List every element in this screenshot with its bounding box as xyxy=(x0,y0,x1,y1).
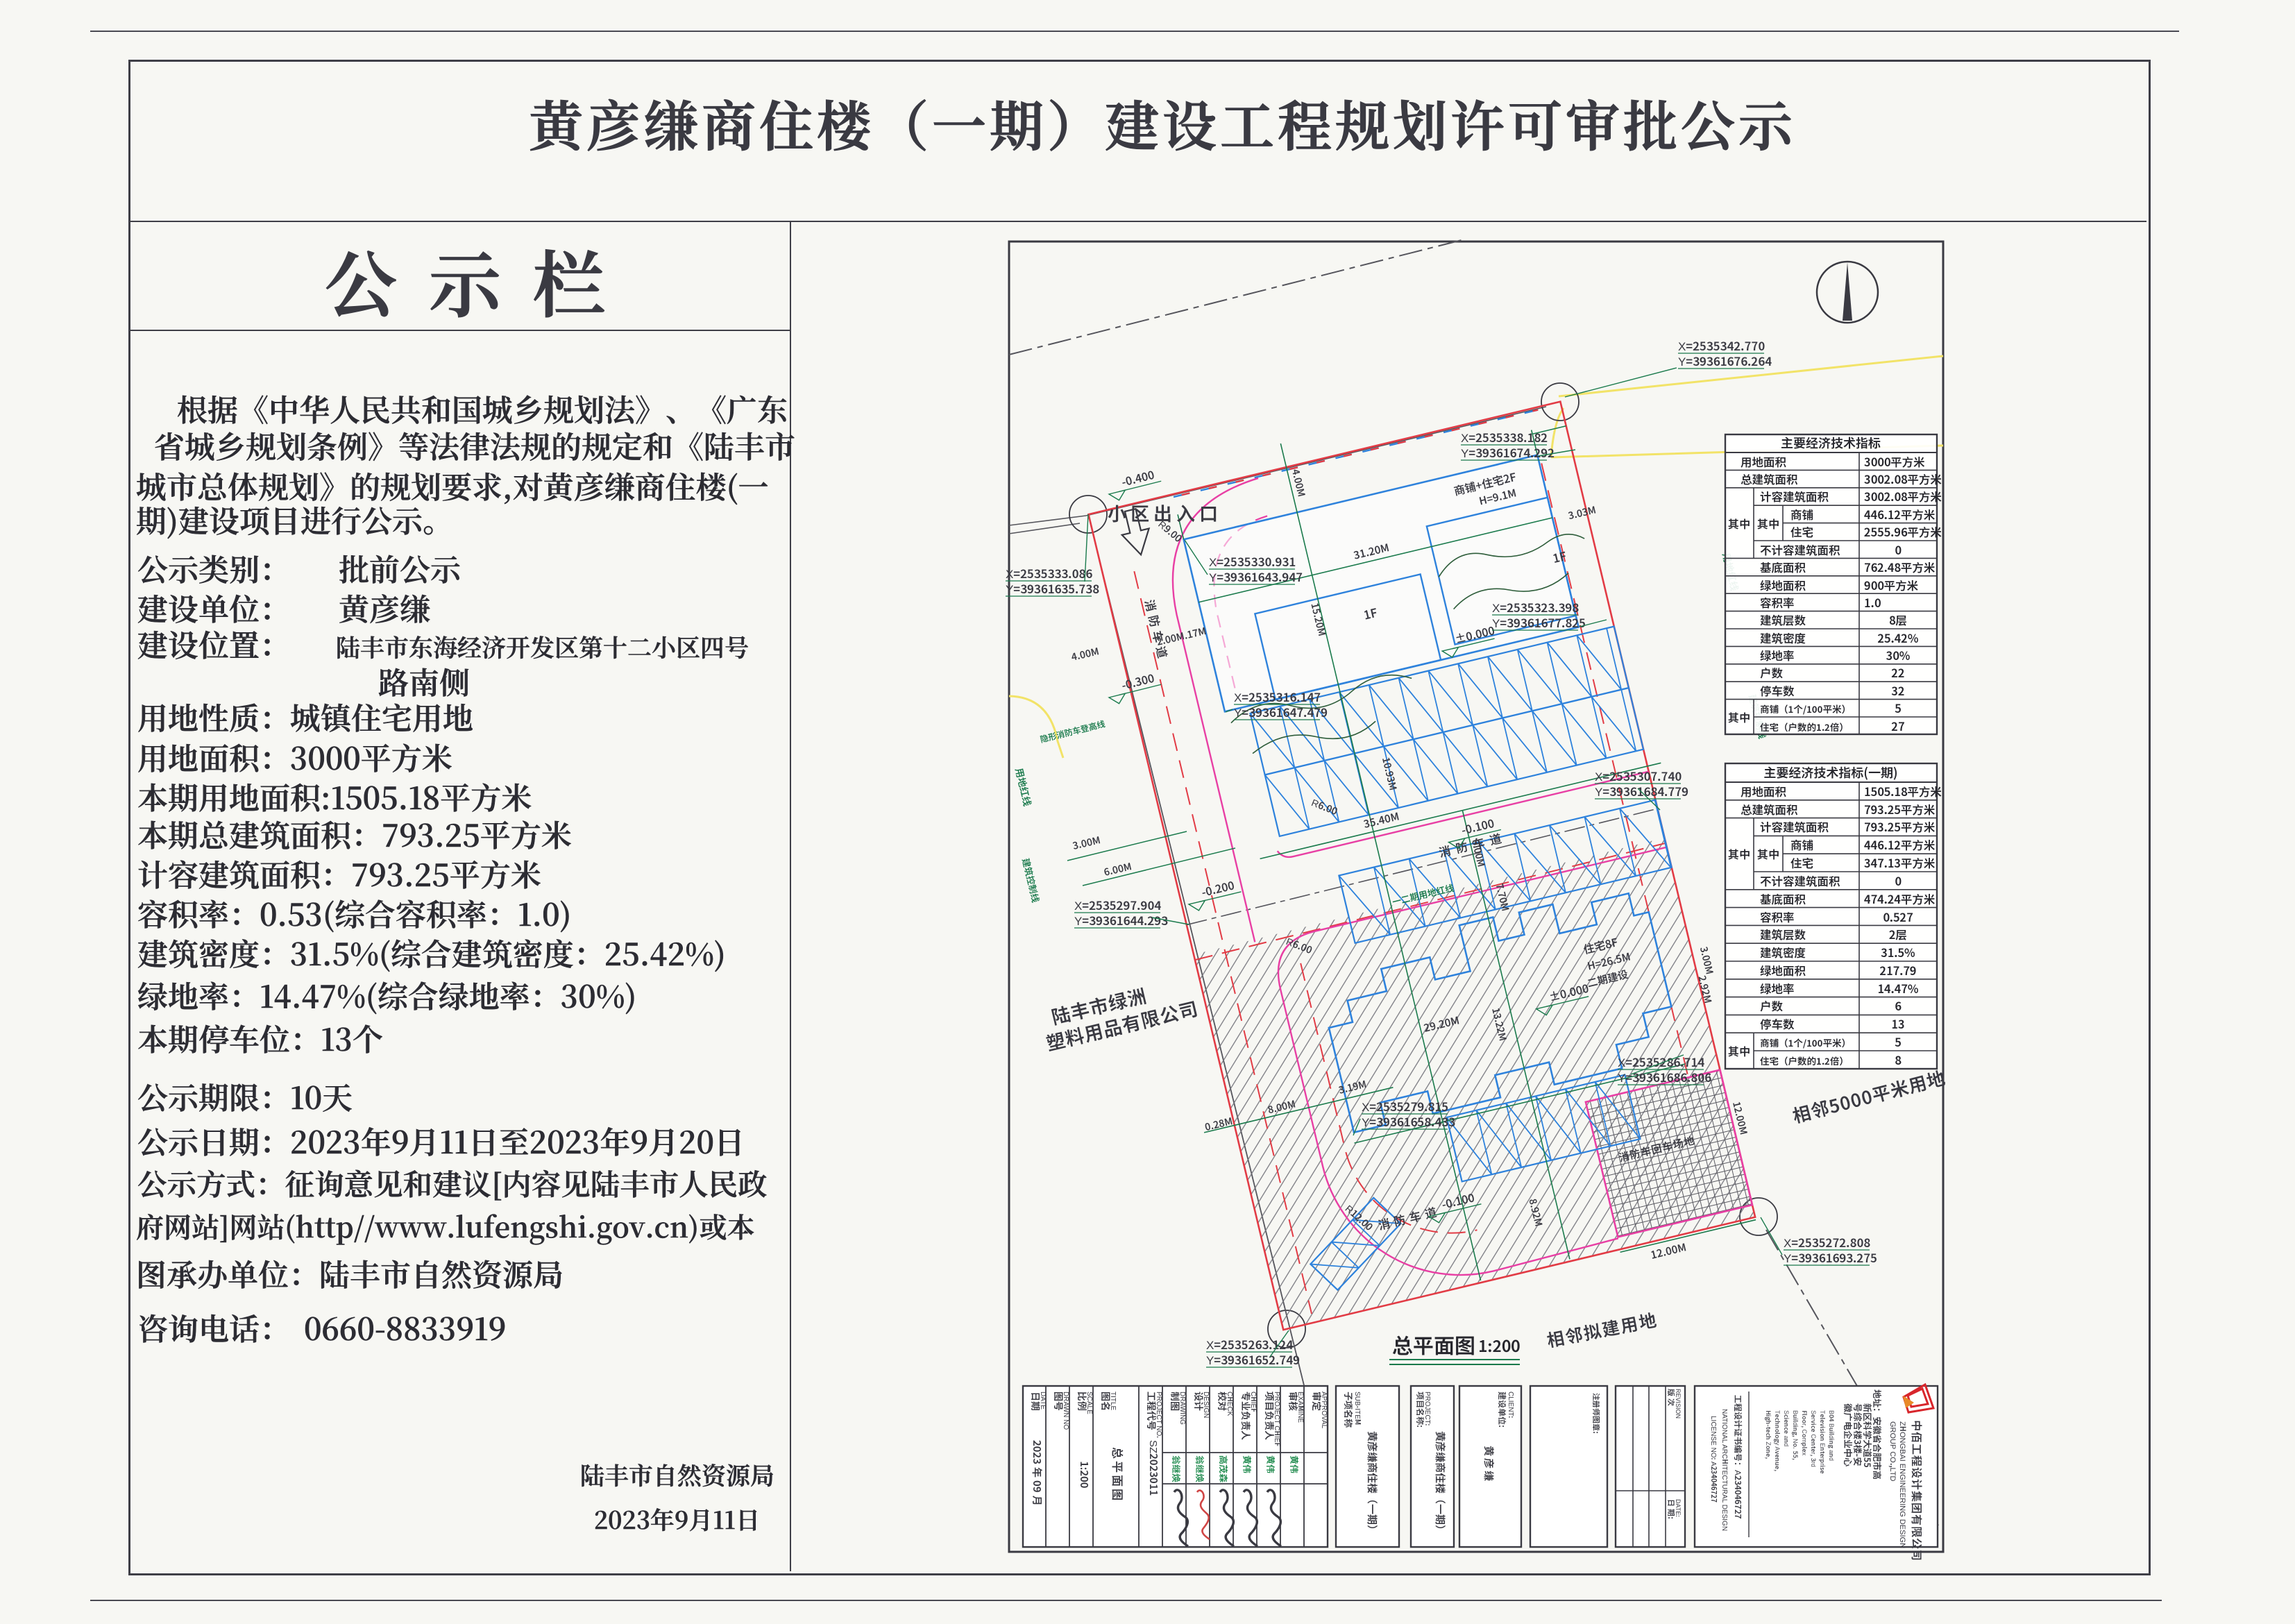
svg-text:商铺: 商铺 xyxy=(1790,836,1813,853)
svg-text:0: 0 xyxy=(1895,872,1902,889)
svg-text:PROJECT CHIEF: PROJECT CHIEF xyxy=(1273,1392,1283,1446)
svg-text:1.0: 1.0 xyxy=(1864,594,1881,611)
svg-text:NATIONAL ARCHITECTURAL DESIGN: NATIONAL ARCHITECTURAL DESIGN xyxy=(1720,1409,1731,1531)
svg-text:EXAMINE: EXAMINE xyxy=(1296,1392,1307,1423)
svg-text:其中: 其中 xyxy=(1728,1042,1750,1059)
svg-text:446.12平方米: 446.12平方米 xyxy=(1864,836,1935,853)
svg-text:计容建筑面积: 计容建筑面积 xyxy=(1760,818,1829,835)
svg-text:1505.18平方米: 1505.18平方米 xyxy=(1864,783,1942,800)
svg-text:基底面积: 基底面积 xyxy=(1760,559,1806,575)
svg-text:LICENSE NO: A234046727: LICENSE NO: A234046727 xyxy=(1709,1416,1720,1503)
svg-text:徽广电企业中心: 徽广电企业中心 xyxy=(1842,1403,1855,1466)
svg-text:6: 6 xyxy=(1895,997,1902,1014)
svg-text:工程设计证书编号：A234046727: 工程设计证书编号：A234046727 xyxy=(1732,1395,1744,1519)
svg-text:0.28M: 0.28M xyxy=(1203,1114,1234,1134)
svg-text:SZ2023011: SZ2023011 xyxy=(1146,1440,1161,1496)
svg-text:6.00M: 6.00M xyxy=(1103,859,1133,879)
svg-text:32: 32 xyxy=(1891,682,1904,699)
svg-text:12.00M: 12.00M xyxy=(1649,1240,1688,1262)
svg-text:注册师图章:: 注册师图章: xyxy=(1591,1393,1602,1433)
svg-text:1:200: 1:200 xyxy=(1077,1461,1092,1489)
svg-text:黄伟: 黄伟 xyxy=(1264,1455,1278,1473)
svg-text:翁继焕: 翁继焕 xyxy=(1170,1455,1183,1482)
svg-text:Y=39361643.947: Y=39361643.947 xyxy=(1209,568,1303,585)
svg-text:中佰工程设计集团有限公司: 中佰工程设计集团有限公司 xyxy=(1909,1420,1926,1562)
svg-text:户数: 户数 xyxy=(1760,664,1784,681)
svg-text:户数: 户数 xyxy=(1760,997,1784,1014)
svg-text:计容建筑面积: 计容建筑面积 xyxy=(1760,488,1829,505)
svg-text:隐形消防车登高线: 隐形消防车登高线 xyxy=(1039,718,1106,745)
svg-text:PROJECT:: PROJECT: xyxy=(1423,1392,1434,1426)
svg-text:SCALE: SCALE xyxy=(1085,1392,1096,1414)
svg-text:-0.200: -0.200 xyxy=(1200,876,1236,899)
svg-text:217.79: 217.79 xyxy=(1880,962,1917,979)
svg-text:黄伟: 黄伟 xyxy=(1288,1455,1301,1473)
svg-text:347.13平方米: 347.13平方米 xyxy=(1864,854,1935,871)
svg-text:Television Enterprise: Television Enterprise xyxy=(1818,1410,1827,1474)
svg-text:762.48平方米: 762.48平方米 xyxy=(1864,559,1935,575)
svg-text:绿地面积: 绿地面积 xyxy=(1760,962,1806,979)
svg-text:用地面积: 用地面积 xyxy=(1741,783,1786,800)
svg-text:GROUP CO.,LTD: GROUP CO.,LTD xyxy=(1888,1421,1899,1482)
svg-text:CHECK: CHECK xyxy=(1226,1392,1236,1416)
svg-text:22: 22 xyxy=(1891,664,1904,681)
svg-text:0.527: 0.527 xyxy=(1883,908,1913,925)
svg-text:REVISION: REVISION xyxy=(1674,1389,1683,1419)
svg-text:793.25平方米: 793.25平方米 xyxy=(1864,818,1935,835)
svg-text:2555.96平方米: 2555.96平方米 xyxy=(1864,523,1942,540)
svg-text:商铺: 商铺 xyxy=(1790,506,1813,523)
svg-text:黄彦缣商住楼（一期）: 黄彦缣商住楼（一期） xyxy=(1365,1431,1380,1535)
svg-text:2023 年 09 月: 2023 年 09 月 xyxy=(1030,1440,1044,1506)
svg-text:R6.00: R6.00 xyxy=(1310,795,1339,818)
svg-text:黄彦缣商住楼（一期）: 黄彦缣商住楼（一期） xyxy=(1433,1431,1448,1535)
svg-text:474.24平方米: 474.24平方米 xyxy=(1864,890,1935,907)
svg-text:DESIGN: DESIGN xyxy=(1202,1392,1212,1418)
svg-text:其中: 其中 xyxy=(1728,845,1750,862)
svg-text:相邻拟建用地: 相邻拟建用地 xyxy=(1545,1307,1660,1353)
svg-text:Y=39361686.806: Y=39361686.806 xyxy=(1618,1068,1711,1085)
svg-text:其中: 其中 xyxy=(1757,845,1779,862)
svg-text:3002.08平方米: 3002.08平方米 xyxy=(1864,471,1942,487)
svg-text:总建筑面积: 总建筑面积 xyxy=(1741,801,1798,818)
svg-text:相邻5000平米用地: 相邻5000平米用地 xyxy=(1790,1064,1948,1128)
svg-text:不计容建筑面积: 不计容建筑面积 xyxy=(1760,872,1840,889)
svg-text:DRAWING: DRAWING xyxy=(1178,1392,1189,1425)
svg-text:25.42%: 25.42% xyxy=(1877,629,1918,646)
svg-text:Y=39361635.738: Y=39361635.738 xyxy=(1006,580,1099,597)
svg-text:Y=39361644.293: Y=39361644.293 xyxy=(1074,911,1168,929)
svg-text:住宅: 住宅 xyxy=(1790,523,1813,540)
svg-text:Y=39361647.479: Y=39361647.479 xyxy=(1234,703,1328,720)
svg-text:黄伟: 黄伟 xyxy=(1241,1455,1254,1473)
svg-text:31.5%: 31.5% xyxy=(1881,944,1915,961)
svg-text:绿地率: 绿地率 xyxy=(1760,980,1795,997)
svg-text:3.03M: 3.03M xyxy=(1567,502,1598,523)
svg-text:Y=39361693.275: Y=39361693.275 xyxy=(1784,1249,1877,1266)
svg-text:High-tech Zone,: High-tech Zone, xyxy=(1764,1410,1773,1460)
svg-text:PROJECT NO.: PROJECT NO. xyxy=(1155,1392,1165,1438)
svg-text:900平方米: 900平方米 xyxy=(1864,577,1918,593)
svg-text:3000平方米: 3000平方米 xyxy=(1864,453,1925,470)
svg-text:14.47%: 14.47% xyxy=(1877,980,1918,997)
svg-text:其中: 其中 xyxy=(1728,709,1750,725)
svg-text:10.93M: 10.93M xyxy=(1379,756,1400,792)
svg-text:DATE:: DATE: xyxy=(1674,1499,1683,1517)
svg-text:容积率: 容积率 xyxy=(1760,594,1795,611)
svg-text:-0.400: -0.400 xyxy=(1119,466,1155,490)
svg-text:Floor, Complex: Floor, Complex xyxy=(1800,1410,1809,1456)
svg-text:5: 5 xyxy=(1895,1033,1902,1050)
svg-text:5: 5 xyxy=(1895,700,1902,716)
svg-text:商铺（1个/100平米）: 商铺（1个/100平米） xyxy=(1760,1035,1851,1049)
svg-text:1:200: 1:200 xyxy=(1478,1333,1521,1357)
svg-text:DRAWN NO: DRAWN NO xyxy=(1062,1392,1072,1430)
svg-text:住宅（户数的1.2倍）: 住宅（户数的1.2倍） xyxy=(1760,1054,1849,1067)
svg-text:-0.300: -0.300 xyxy=(1119,669,1155,693)
svg-text:建筑层数: 建筑层数 xyxy=(1760,611,1806,628)
svg-text:Y=39361658.433: Y=39361658.433 xyxy=(1362,1113,1455,1130)
svg-text:建筑密度: 建筑密度 xyxy=(1760,629,1806,646)
svg-text:用地红线: 用地红线 xyxy=(1012,766,1035,807)
svg-text:APPROVAL: APPROVAL xyxy=(1320,1392,1330,1429)
svg-text:Y=39361677.825: Y=39361677.825 xyxy=(1492,614,1586,631)
svg-text:SUB-ITEM: SUB-ITEM xyxy=(1353,1392,1364,1425)
svg-text:30%: 30% xyxy=(1886,647,1911,663)
svg-text:用地面积: 用地面积 xyxy=(1741,453,1786,470)
svg-text:DATE: DATE xyxy=(1039,1392,1049,1410)
svg-text:1F: 1F xyxy=(1550,546,1568,566)
svg-text:0: 0 xyxy=(1895,541,1902,558)
svg-text:绿地面积: 绿地面积 xyxy=(1760,577,1806,593)
svg-text:CHIEF: CHIEF xyxy=(1249,1392,1260,1412)
svg-text:2层: 2层 xyxy=(1889,926,1907,942)
svg-text:建筑层数: 建筑层数 xyxy=(1760,926,1806,942)
svg-text:消防车道: 消防车道 xyxy=(1142,598,1174,663)
svg-text:3.00M: 3.00M xyxy=(1072,833,1102,853)
svg-text:住宅: 住宅 xyxy=(1790,854,1813,871)
svg-text:住宅（户数的1.2倍）: 住宅（户数的1.2倍） xyxy=(1760,720,1849,734)
svg-text:翁继焕: 翁继焕 xyxy=(1194,1455,1207,1482)
svg-text:Y=39361652.749: Y=39361652.749 xyxy=(1206,1351,1300,1368)
svg-text:容积率: 容积率 xyxy=(1760,908,1795,925)
svg-text:停车数: 停车数 xyxy=(1760,682,1795,699)
svg-text:基底面积: 基底面积 xyxy=(1760,890,1806,907)
svg-text:Y=39361676.264: Y=39361676.264 xyxy=(1678,352,1772,369)
svg-text:TITLE: TITLE xyxy=(1109,1392,1119,1411)
svg-text:停车数: 停车数 xyxy=(1760,1015,1795,1032)
svg-text:主要经济技术指标: 主要经济技术指标 xyxy=(1781,434,1881,452)
svg-text:793.25平方米: 793.25平方米 xyxy=(1864,801,1935,818)
svg-text:4.00M: 4.00M xyxy=(1070,644,1101,664)
svg-text:Science and: Science and xyxy=(1782,1410,1791,1446)
svg-text:4.00M: 4.00M xyxy=(1289,468,1309,498)
svg-text:8层: 8层 xyxy=(1889,611,1907,628)
svg-text:建筑控制线: 建筑控制线 xyxy=(1019,856,1043,904)
svg-text:总平面图: 总平面图 xyxy=(1110,1447,1127,1503)
svg-text:B04 Building and: B04 Building and xyxy=(1827,1410,1836,1461)
svg-text:其中: 其中 xyxy=(1728,515,1750,532)
svg-text:总平面图: 总平面图 xyxy=(1392,1329,1475,1360)
svg-text:Service Center, 3rd: Service Center, 3rd xyxy=(1809,1410,1818,1467)
svg-text:13: 13 xyxy=(1891,1015,1904,1032)
svg-text:Building, No. 55,: Building, No. 55, xyxy=(1791,1410,1800,1461)
svg-text:建筑密度: 建筑密度 xyxy=(1760,944,1806,961)
svg-text:不计容建筑面积: 不计容建筑面积 xyxy=(1760,541,1840,558)
svg-text:3002.08平方米: 3002.08平方米 xyxy=(1864,488,1942,505)
svg-text:绿地率: 绿地率 xyxy=(1760,647,1795,663)
svg-text:其中: 其中 xyxy=(1757,515,1779,532)
svg-text:27: 27 xyxy=(1891,718,1904,734)
svg-text:Y=39361674.292: Y=39361674.292 xyxy=(1461,443,1555,461)
svg-text:8: 8 xyxy=(1895,1051,1902,1068)
svg-text:CLIENT:: CLIENT: xyxy=(1507,1392,1517,1419)
svg-text:高茂森: 高茂森 xyxy=(1217,1455,1230,1482)
svg-text:黄彦缣: 黄彦缣 xyxy=(1482,1446,1496,1483)
svg-text:商铺（1个/100平米）: 商铺（1个/100平米） xyxy=(1760,702,1851,716)
svg-text:446.12平方米: 446.12平方米 xyxy=(1864,506,1935,523)
svg-text:Y=39361684.779: Y=39361684.779 xyxy=(1595,782,1688,800)
svg-text:建设单位:: 建设单位: xyxy=(1496,1392,1508,1428)
svg-text:3.00M: 3.00M xyxy=(1697,945,1717,976)
svg-text:总建筑面积: 总建筑面积 xyxy=(1741,471,1798,487)
svg-text:主要经济技术指标(一期): 主要经济技术指标(一期) xyxy=(1763,763,1897,781)
svg-text:Technology Avenue,: Technology Avenue, xyxy=(1773,1410,1782,1472)
